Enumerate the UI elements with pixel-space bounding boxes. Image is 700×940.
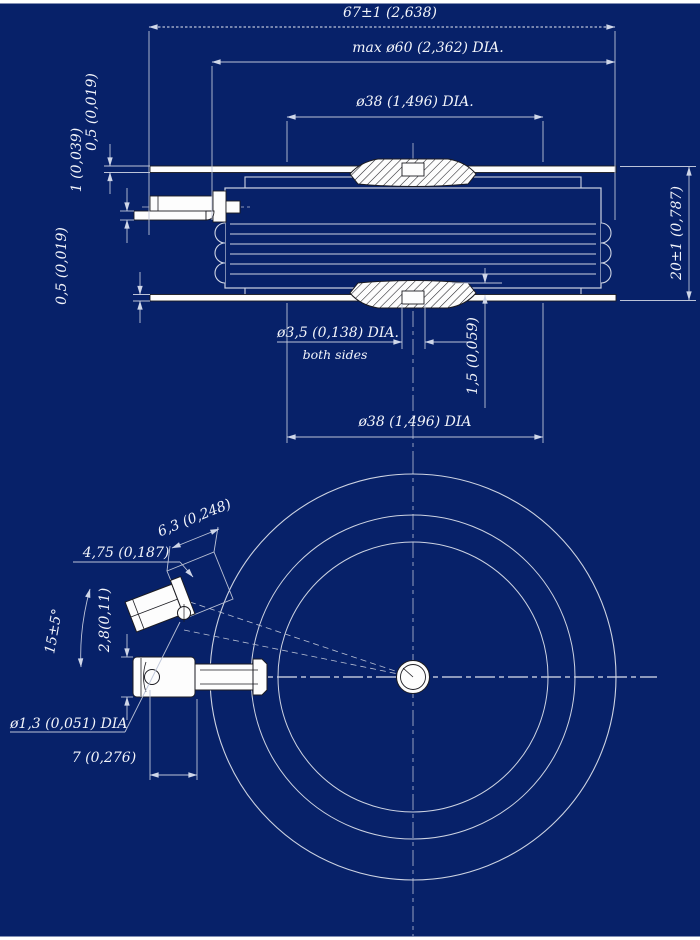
frame-edge-bottom <box>0 937 700 940</box>
technical-drawing-page: 67±1 (2,638) max ø60 (2,362) DIA. ø38 (1… <box>0 0 700 940</box>
outline-drawing-svg: 67±1 (2,638) max ø60 (2,362) DIA. ø38 (1… <box>0 0 700 940</box>
dim-label-contact-dia-top: ø38 (1,496) DIA. <box>355 94 473 110</box>
horizontal-terminal-tab-end <box>253 659 267 695</box>
dim-label-height: 20±1 (0,787) <box>669 186 685 281</box>
dim-label-total-width: 67±1 (2,638) <box>343 5 437 21</box>
drawing-background <box>0 0 700 940</box>
bottom-center-recess <box>402 291 424 304</box>
dim-label-recess-depth: 1,5 (0,059) <box>465 317 481 395</box>
gate-lead-strip <box>134 211 206 220</box>
horizontal-terminal-neck <box>195 664 253 690</box>
dim-label-recess-note: both sides <box>303 347 368 362</box>
dim-label-hole-offset: 7 (0,276) <box>72 750 136 766</box>
gate-lead-stub <box>226 201 240 213</box>
housing-body <box>225 188 601 288</box>
dim-label-plate-bottom: 0,5 (0,019) <box>54 227 70 305</box>
dim-label-plate-top: 0,5 (0,019) <box>84 73 100 151</box>
horizontal-terminal-body <box>133 657 195 697</box>
frame-edge-top <box>0 0 700 4</box>
dim-label-tab-width: 4,75 (0,187) <box>82 545 170 561</box>
top-center-recess <box>402 163 424 176</box>
dim-label-contact-dia-bottom: ø38 (1,496) DIA <box>357 414 471 430</box>
dim-label-hole-dia: ø1,3 (0,051) DIA <box>9 716 127 732</box>
gate-connector-collar <box>213 191 226 222</box>
dim-label-terminal-width: 2,8(0,11) <box>97 588 113 653</box>
dim-label-lead-thickness: 1 (0,039) <box>69 128 85 192</box>
dim-label-max-diameter: max ø60 (2,362) DIA. <box>352 40 503 56</box>
dim-label-recess-dia: ø3,5 (0,138) DIA. <box>276 325 399 341</box>
